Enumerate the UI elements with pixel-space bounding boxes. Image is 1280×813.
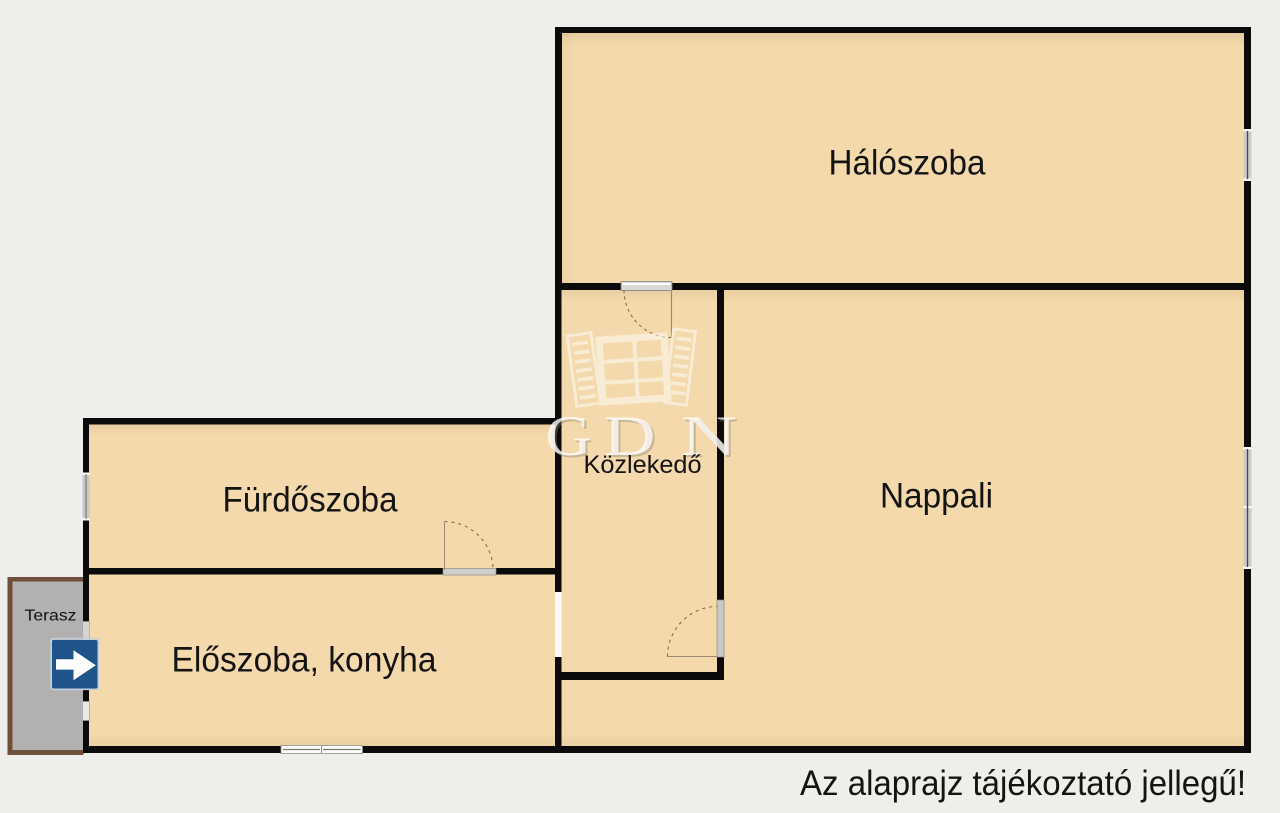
svg-text:Az alaprajz tájékoztató jelleg: Az alaprajz tájékoztató jellegű!	[800, 764, 1246, 803]
svg-text:Nappali: Nappali	[880, 477, 993, 516]
svg-text:Hálószoba: Hálószoba	[829, 144, 986, 183]
svg-text:Terasz: Terasz	[25, 608, 77, 625]
svg-text:Fürdőszoba: Fürdőszoba	[223, 481, 399, 520]
svg-text:Előszoba, konyha: Előszoba, konyha	[172, 641, 438, 680]
svg-text:Közlekedő: Közlekedő	[584, 451, 702, 479]
